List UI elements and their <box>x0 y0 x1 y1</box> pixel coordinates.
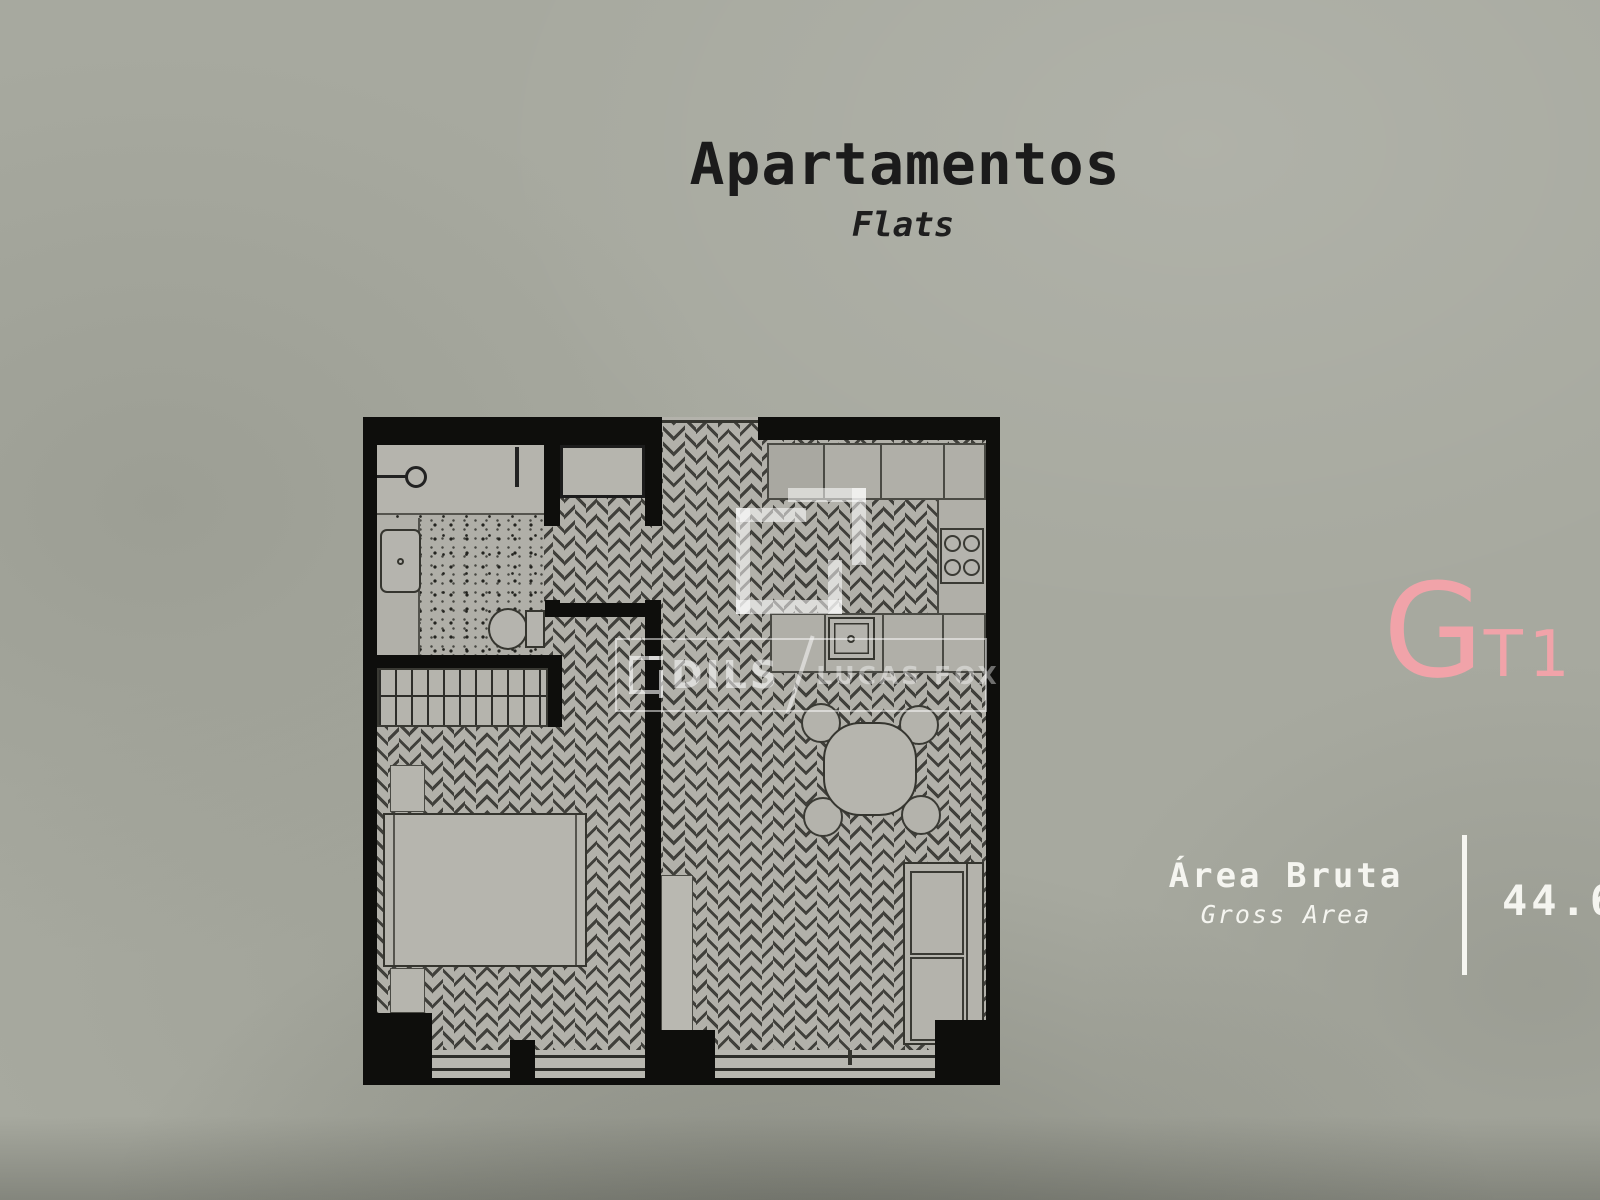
brand-logo-icon <box>736 600 842 614</box>
watermark-brand-primary: DILS <box>671 653 780 697</box>
bathroom-wall-bottom <box>363 655 557 668</box>
area-divider-line <box>1462 835 1467 975</box>
wall-top-right <box>758 417 1000 440</box>
area-value: 44.6 <box>1502 876 1600 925</box>
unit-letter: G <box>1383 566 1484 696</box>
shower-arm <box>377 475 407 478</box>
toilet-icon <box>488 608 528 650</box>
hanger-rail <box>379 670 546 725</box>
watermark-brand-secondary: LUCAS FOX <box>816 661 999 690</box>
sofa-backrest <box>966 864 968 1043</box>
bedroom-window-2 <box>535 1050 645 1078</box>
bed-icon <box>383 813 587 967</box>
dils-bracket-icon <box>629 656 659 694</box>
page-subtitle: Flats <box>0 205 1600 245</box>
entry-threshold <box>662 420 758 423</box>
page-title: Apartamentos <box>0 130 1600 198</box>
hall-wall-stub <box>550 603 657 617</box>
slash-divider-icon <box>786 635 815 714</box>
unit-code: T1 <box>1484 623 1576 687</box>
brand-logo-icon <box>736 508 750 614</box>
shower-head-icon <box>405 466 427 488</box>
wall-left <box>363 417 377 1085</box>
footboard-line <box>575 815 577 965</box>
sofa-cushion <box>910 871 964 955</box>
wall-bottom-edge <box>363 1078 1000 1085</box>
rail-line <box>379 695 546 697</box>
floor-plan: DILS LUCAS FOX <box>363 417 1000 1085</box>
wardrobe-wall-right <box>548 655 562 727</box>
dining-table-icon <box>823 722 917 816</box>
bathroom-wall-right <box>544 441 560 526</box>
wardrobe-icon <box>377 668 548 727</box>
sink-drain <box>397 558 404 565</box>
brand-logo-icon <box>736 508 806 522</box>
area-label-translation: Gross Area <box>1158 900 1414 929</box>
nightstand <box>390 765 425 812</box>
nightstand <box>390 968 425 1013</box>
shower-partition <box>515 447 519 487</box>
headboard-line <box>393 815 395 965</box>
area-label: Área Bruta <box>1158 856 1414 896</box>
area-label-block: Área Bruta Gross Area <box>1158 856 1414 929</box>
closet-wall-right <box>645 440 662 526</box>
presentation-slide: Apartamentos Flats <box>0 0 1600 1200</box>
brand-logo-icon <box>828 560 842 614</box>
wall-block-bottom-middle <box>645 1030 715 1085</box>
stove-icon <box>940 528 984 584</box>
corner-block-bottom-left <box>363 1013 432 1085</box>
sofa-icon <box>903 862 984 1045</box>
wall-top-left <box>363 417 662 445</box>
sideboard <box>661 875 693 1048</box>
living-room-window <box>715 1050 935 1078</box>
watermark-banner: DILS LUCAS FOX <box>615 638 987 712</box>
wall-right <box>986 417 1000 1085</box>
brand-logo-icon <box>852 488 866 565</box>
entry-closet <box>560 445 645 498</box>
bedroom-window <box>432 1050 510 1078</box>
window-mullion <box>848 1050 852 1065</box>
corner-block-bottom-right <box>935 1020 1000 1085</box>
toilet-tank <box>525 610 545 648</box>
unit-type-label: GT1 <box>1383 566 1576 696</box>
